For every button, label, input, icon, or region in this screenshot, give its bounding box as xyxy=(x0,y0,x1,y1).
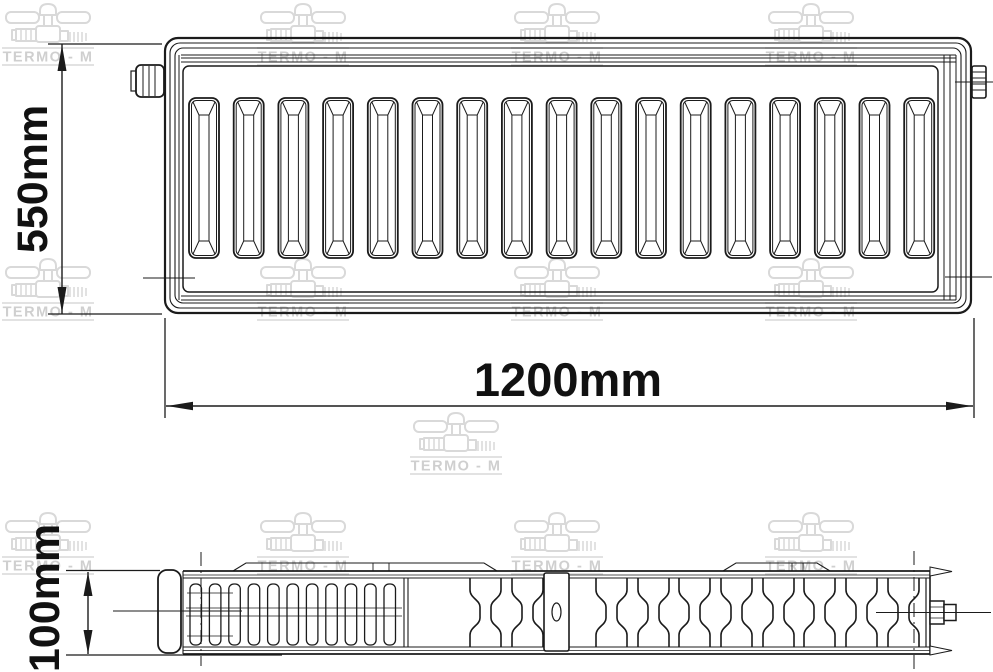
arrow-up-icon xyxy=(84,572,93,596)
grille-slot xyxy=(846,578,877,647)
channel-groove xyxy=(547,98,577,258)
channel-groove xyxy=(815,98,845,258)
channel-groove xyxy=(681,98,711,258)
watermark-logo xyxy=(2,4,94,66)
channel-groove xyxy=(591,98,621,258)
convector-fin xyxy=(268,584,280,645)
watermark-logo xyxy=(410,413,502,475)
convector-fin xyxy=(326,584,338,645)
grille-slot xyxy=(596,578,627,647)
watermark-logo xyxy=(511,4,603,66)
left-end-cap xyxy=(158,570,181,653)
arrow-down-icon xyxy=(84,630,93,654)
channel-groove xyxy=(725,98,755,258)
arrow-right-icon xyxy=(946,402,972,411)
channel-groove xyxy=(234,98,264,258)
grille-slot xyxy=(804,578,835,647)
fin-zone-lines xyxy=(186,578,408,647)
top-left-plug-fitting xyxy=(131,65,164,97)
watermark-logo xyxy=(511,259,603,321)
grille-slot xyxy=(721,578,752,647)
watermark-logo xyxy=(257,513,349,575)
channel-groove xyxy=(457,98,487,258)
grille-slot xyxy=(638,578,669,647)
channel-groove xyxy=(189,98,219,258)
watermark-logo xyxy=(2,259,94,321)
radiator-technical-drawing: TERMO - M xyxy=(0,0,993,672)
drawing-canvas: TERMO - M xyxy=(0,0,993,672)
watermark-layer xyxy=(2,4,857,575)
height-dimension-label: 550mm xyxy=(9,105,57,253)
watermark-logo xyxy=(765,4,857,66)
arrow-left-icon xyxy=(167,402,193,411)
channel-groove xyxy=(860,98,890,258)
width-dimension-label: 1200mm xyxy=(474,353,662,406)
watermark-logo xyxy=(765,259,857,321)
grille-slots xyxy=(470,578,919,647)
convector-fin xyxy=(248,584,260,645)
mounting-bracket xyxy=(544,573,569,651)
convector-fin xyxy=(306,584,318,645)
channel-groove xyxy=(904,98,934,258)
convector-fin xyxy=(345,584,357,645)
depth-dimension-label: 100mm xyxy=(21,524,69,672)
channel-groove xyxy=(770,98,800,258)
convector-fin xyxy=(287,584,299,645)
watermark-logo xyxy=(257,4,349,66)
depth-dimension: 100mm xyxy=(21,524,282,672)
channel-groove xyxy=(278,98,308,258)
grille-slot xyxy=(679,578,710,647)
channel-groove xyxy=(636,98,666,258)
grille-slot xyxy=(512,578,543,647)
watermark-logo xyxy=(257,259,349,321)
width-dimension: 1200mm xyxy=(165,318,974,418)
front-channel-grooves xyxy=(189,98,934,258)
channel-groove xyxy=(413,98,443,258)
watermark-logo xyxy=(765,513,857,575)
convector-fin xyxy=(384,584,396,645)
grille-slot xyxy=(470,578,501,647)
convector-fin xyxy=(365,584,377,645)
channel-groove xyxy=(323,98,353,258)
grille-slot xyxy=(763,578,794,647)
channel-groove xyxy=(368,98,398,258)
watermark-logo xyxy=(511,513,603,575)
channel-groove xyxy=(502,98,532,258)
